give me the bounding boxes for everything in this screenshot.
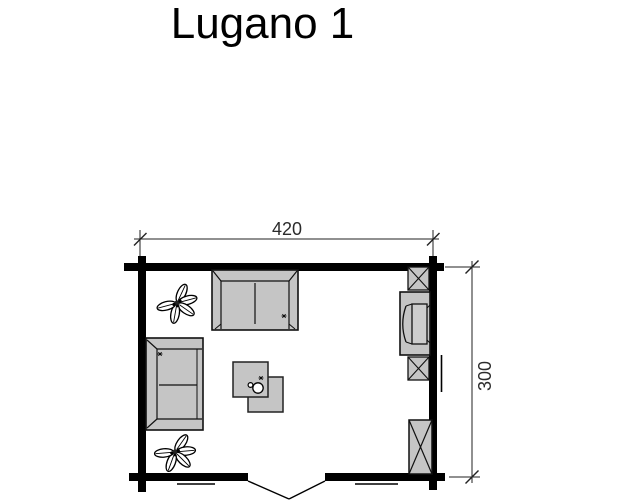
cup-icon: [253, 383, 263, 393]
wall-bottom-left: [129, 473, 248, 481]
cup-small-icon: [248, 383, 253, 388]
floorplan-page: Lugano 1 420 300: [0, 0, 625, 500]
wall-left: [138, 256, 146, 492]
windows: [177, 355, 442, 484]
sofa-top-icon: [212, 270, 298, 330]
crossed-box-lower-icon: [408, 357, 429, 380]
wardrobe-icon: [409, 420, 432, 474]
plant-top-icon: [156, 283, 198, 324]
floorplan-drawing: [0, 0, 625, 500]
dimension-depth: [445, 261, 480, 484]
tv-cabinet-icon: [400, 292, 430, 355]
dimension-width: [134, 230, 440, 257]
crossed-box-upper-icon: [408, 267, 429, 290]
plant-bottom-icon: [151, 428, 199, 476]
sofa-left-icon: [146, 338, 203, 430]
coffee-tables-icon: [233, 362, 283, 412]
double-door-icon: [248, 481, 325, 499]
